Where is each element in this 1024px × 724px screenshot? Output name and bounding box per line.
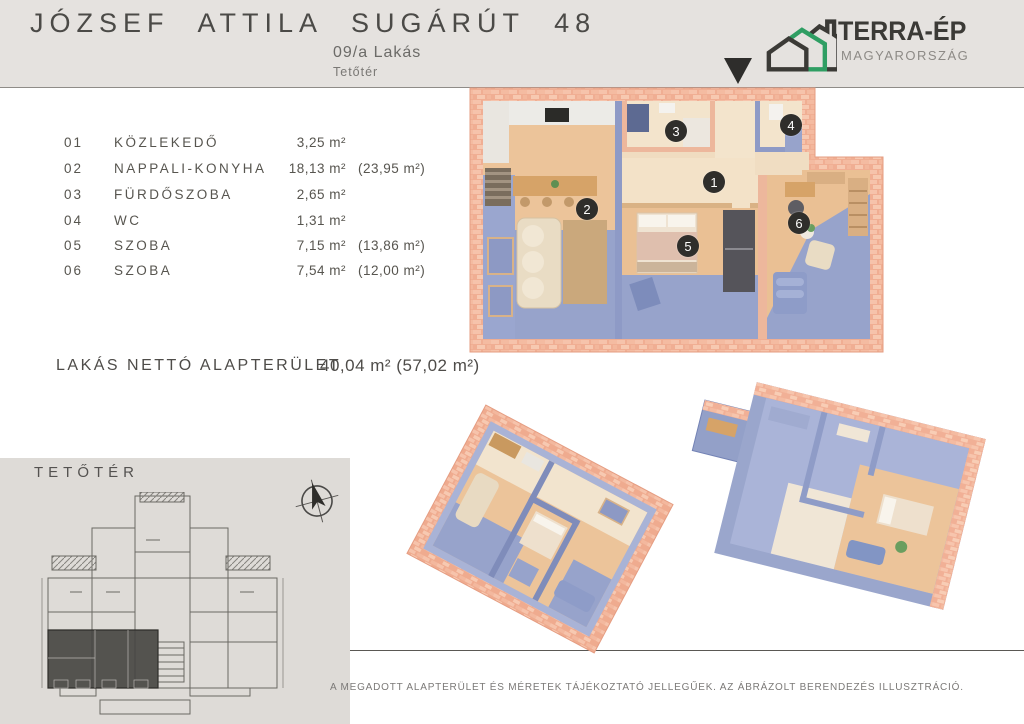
rug	[563, 220, 607, 304]
hall-floor-upper	[715, 101, 755, 158]
axonometric-render-left	[372, 376, 708, 682]
bathtub	[683, 118, 711, 148]
room-number: 03	[64, 187, 83, 202]
floor-plan-label: TETŐTÉR	[34, 464, 139, 481]
room-name: SZOBA	[114, 263, 172, 278]
room-badge-3: 3	[665, 120, 687, 142]
room-number: 02	[64, 161, 83, 176]
room-name: SZOBA	[114, 238, 172, 253]
axonometric-render-right	[672, 348, 1017, 648]
room-name: FÜRDŐSZOBA	[114, 187, 233, 202]
room-badge-1: 1	[703, 171, 725, 193]
disclaimer-text: A MEGADOTT ALAPTERÜLET ÉS MÉRETEK TÁJÉKO…	[330, 682, 950, 693]
room-area: 7,15 m²	[230, 238, 346, 253]
room-name: WC	[114, 213, 142, 228]
room-badge-5: 5	[677, 235, 699, 257]
room-number: 01	[64, 135, 83, 150]
room-area: 3,25 m²	[230, 135, 346, 150]
sink	[659, 103, 675, 113]
brochure-page: JÓZSEF ATTILA SUGÁRÚT 48 09/a Lakás Tető…	[0, 0, 1024, 724]
room-area-gross: (12,00 m²)	[358, 263, 468, 278]
technical-floorplan-drawing	[40, 492, 310, 720]
room-number: 06	[64, 263, 83, 278]
wardrobe	[723, 210, 755, 292]
shower	[625, 104, 649, 132]
room-area: 18,13 m²	[230, 161, 346, 176]
room-area: 1,31 m²	[230, 213, 346, 228]
desk	[785, 182, 815, 197]
room-badge-4: 4	[780, 114, 802, 136]
floor-subtitle: Tetőtér	[333, 65, 378, 79]
page-title: JÓZSEF ATTILA SUGÁRÚT 48	[30, 8, 596, 39]
terra-ep-logo-icon	[763, 13, 837, 75]
logo-name: TERRA-ÉP	[838, 16, 966, 47]
room-area-gross: (13,86 m²)	[358, 238, 468, 253]
room-number: 05	[64, 238, 83, 253]
room-badge-2: 2	[576, 198, 598, 220]
room-badge-6: 6	[788, 212, 810, 234]
cooktop	[545, 108, 569, 122]
logo-country: MAGYARORSZÁG	[841, 48, 969, 63]
toilet	[769, 104, 783, 120]
highlighted-unit	[48, 630, 158, 688]
apartment-subtitle: 09/a Lakás	[333, 44, 421, 62]
net-area-label: LAKÁS NETTÓ ALAPTERÜLET	[56, 357, 341, 375]
hall-floor	[622, 158, 767, 208]
room-name: KÖZLEKEDŐ	[114, 135, 219, 150]
room-area: 2,65 m²	[230, 187, 346, 202]
room-area-gross: (23,95 m²)	[358, 161, 468, 176]
room-number: 04	[64, 213, 83, 228]
room-area: 7,54 m²	[230, 263, 346, 278]
